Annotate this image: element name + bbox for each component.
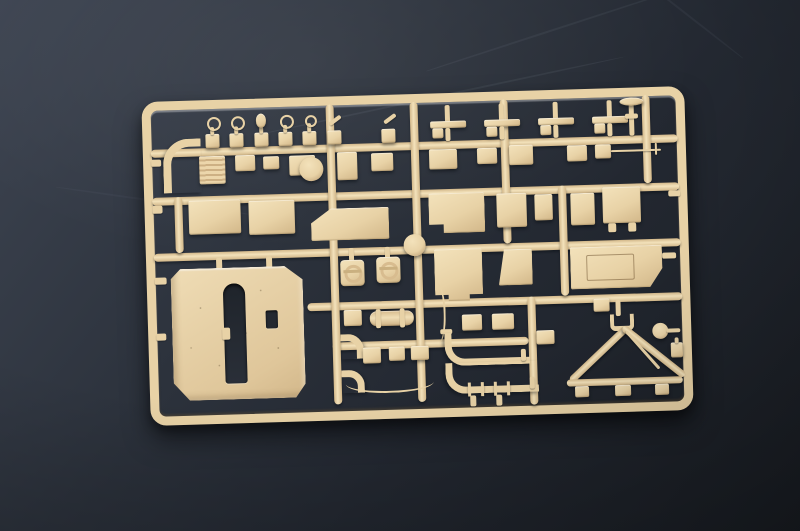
small-part	[477, 148, 497, 165]
antenna-base-part	[595, 144, 611, 158]
barrel-collar	[400, 308, 406, 327]
sprue-gate	[470, 395, 476, 406]
small-part	[593, 298, 609, 311]
small-part	[235, 155, 255, 172]
small-part	[411, 346, 429, 361]
tow-bar-foot	[575, 386, 589, 397]
frame-nub	[152, 206, 162, 214]
sprue-gate	[666, 328, 680, 332]
frame-nub	[155, 277, 167, 284]
small-box-part	[536, 330, 554, 345]
small-part	[344, 310, 362, 327]
small-part	[429, 149, 458, 170]
sprue-gate	[445, 128, 450, 141]
tiny-fitting-knob	[675, 337, 679, 343]
large-slotted-armor-panel	[170, 265, 306, 401]
small-part	[534, 194, 553, 221]
frame-nub	[156, 333, 166, 340]
bracket-prong	[608, 223, 616, 232]
small-part	[462, 314, 482, 331]
frame-nub	[151, 160, 161, 167]
t-bracket-foot	[594, 123, 605, 133]
small-part	[389, 346, 405, 360]
runner-vertical-7	[174, 197, 184, 253]
knob-block	[254, 132, 268, 146]
hatch-ring-icon	[380, 262, 399, 281]
tiny-fitting-part	[671, 342, 683, 357]
beveled-engraved-panel	[570, 245, 663, 290]
hatch-handle-icon	[343, 270, 361, 273]
knob-block	[229, 133, 243, 147]
frame-nub	[662, 252, 676, 258]
rect-panel-part	[496, 193, 527, 228]
small-part	[371, 153, 394, 172]
knob-block	[205, 134, 219, 148]
tow-bar-foot	[615, 385, 631, 396]
small-part	[492, 313, 514, 330]
stowage-box-part	[199, 156, 226, 185]
sprue-gate	[607, 123, 612, 136]
hatch-handle-icon	[379, 267, 397, 270]
small-part	[509, 145, 534, 166]
sprue-gate	[496, 395, 502, 406]
rect-panel-part	[188, 199, 241, 235]
barrel-collar	[376, 309, 382, 328]
t-bracket-foot	[432, 128, 443, 138]
knob-block	[302, 131, 316, 145]
round-hatch-part	[376, 257, 401, 284]
knob-block	[381, 129, 395, 143]
small-part	[567, 145, 587, 162]
frame-nub	[668, 190, 680, 196]
t-bracket-foot	[540, 125, 551, 135]
onion-dome-part	[256, 113, 266, 127]
scratch-line	[426, 0, 674, 72]
panel-hole	[266, 310, 279, 328]
small-part	[337, 152, 358, 181]
scratch-line	[616, 0, 743, 59]
fork-clamp-part	[468, 382, 484, 396]
fork-clamp-part	[494, 381, 510, 395]
small-part	[363, 347, 381, 364]
round-hatch-part	[340, 260, 365, 287]
rect-panel-part	[570, 193, 595, 226]
tube-end-collar	[521, 349, 526, 361]
rect-panel-part	[248, 200, 295, 235]
tow-bar-foot	[655, 384, 669, 395]
sprue-gate	[553, 125, 558, 138]
knob-block	[278, 132, 292, 146]
knob-block	[327, 130, 341, 144]
antenna-tip	[655, 143, 657, 155]
photograph	[0, 0, 800, 531]
slot-bridge-tab	[222, 328, 230, 340]
sprue	[141, 86, 693, 426]
hatch-ring-icon	[344, 265, 363, 284]
t-bracket-foot	[486, 127, 497, 137]
sprue-gate	[499, 126, 504, 139]
gun-barrel-segment	[370, 310, 414, 326]
mushroom-collar	[625, 113, 638, 118]
curved-exhaust-tube	[445, 360, 539, 394]
pronged-bracket-part	[602, 186, 641, 223]
bracket-prong	[628, 223, 636, 232]
small-part	[263, 156, 279, 169]
tube-end-collar	[530, 377, 535, 389]
engraved-outline	[586, 254, 635, 281]
